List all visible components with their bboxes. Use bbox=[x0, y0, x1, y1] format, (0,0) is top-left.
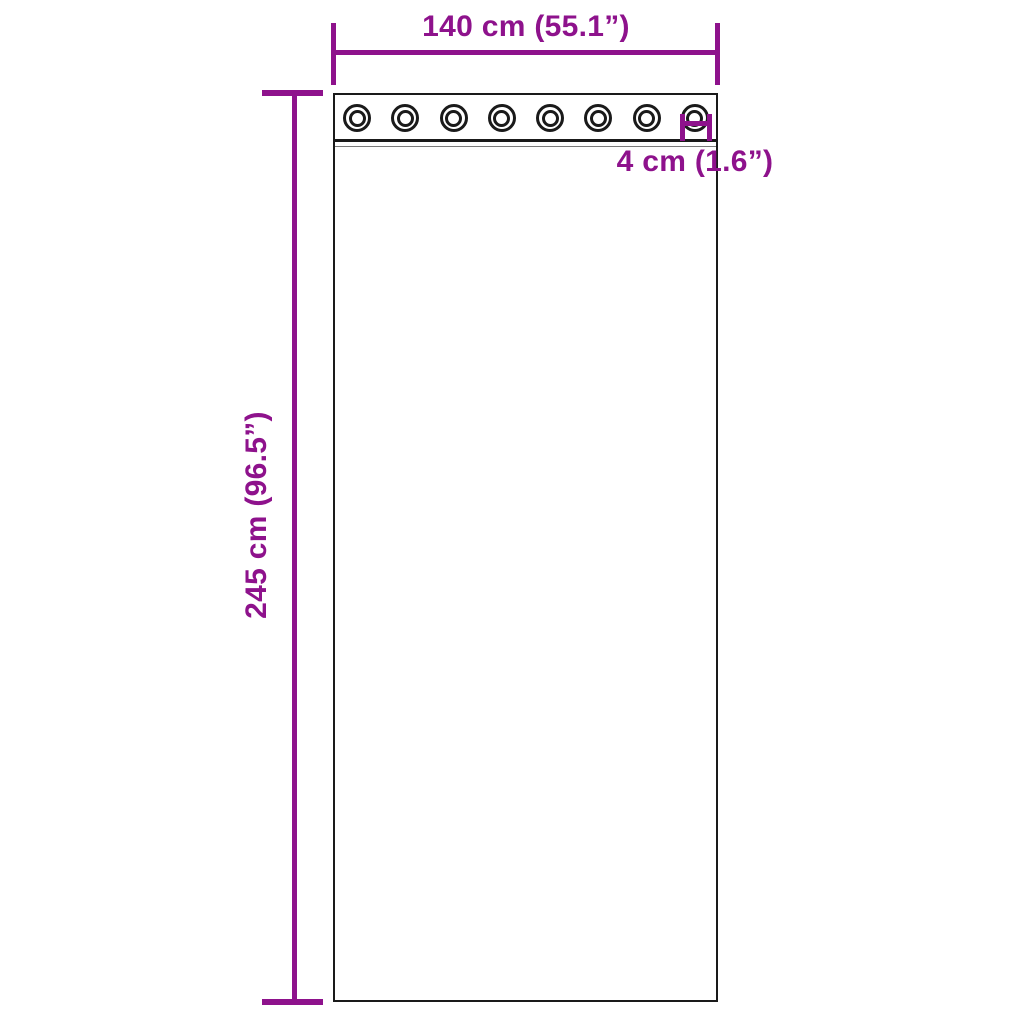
grommet-dimension-label: 4 cm (1.6”) bbox=[600, 145, 790, 179]
grommet-icon bbox=[681, 104, 709, 132]
grommet-band-seam bbox=[335, 139, 716, 142]
grommet-inner-ring bbox=[445, 110, 462, 127]
grommet-inner-ring bbox=[542, 110, 559, 127]
width-dimension-line bbox=[333, 50, 719, 55]
dimension-diagram: 140 cm (55.1”) 245 cm (96.5”) 4 cm (1.6”… bbox=[0, 0, 1024, 1024]
height-dimension-line bbox=[292, 93, 297, 1002]
height-dimension-bottom-cap bbox=[262, 999, 323, 1005]
grommet-inner-ring bbox=[493, 110, 510, 127]
curtain-panel-outline bbox=[333, 93, 718, 1002]
grommet-icon bbox=[343, 104, 371, 132]
grommet-icon bbox=[488, 104, 516, 132]
grommet-inner-ring bbox=[349, 110, 366, 127]
height-dimension-label: 245 cm (96.5”) bbox=[240, 365, 274, 665]
grommet-dimension-left-tick bbox=[680, 114, 685, 141]
grommet-icon bbox=[633, 104, 661, 132]
width-dimension-label: 140 cm (55.1”) bbox=[333, 10, 719, 44]
grommet-inner-ring bbox=[590, 110, 607, 127]
grommet-icon bbox=[536, 104, 564, 132]
grommet-inner-ring bbox=[397, 110, 414, 127]
grommet-dimension-bar bbox=[680, 121, 712, 126]
grommet-dimension-right-tick bbox=[707, 114, 712, 141]
height-dimension-top-cap bbox=[262, 90, 323, 96]
grommet-icon bbox=[440, 104, 468, 132]
grommet-inner-ring bbox=[638, 110, 655, 127]
